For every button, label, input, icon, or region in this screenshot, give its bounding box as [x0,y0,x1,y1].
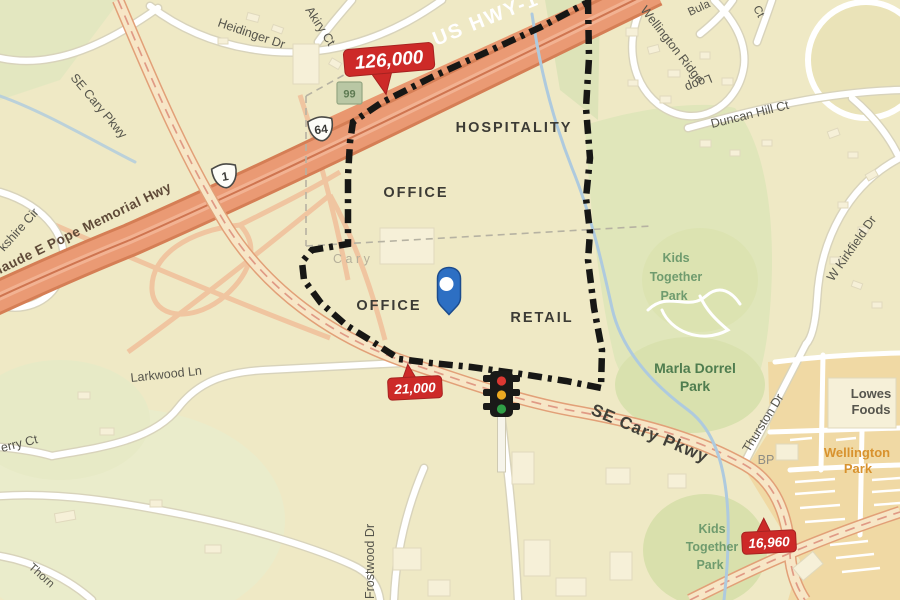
svg-text:64: 64 [313,122,328,138]
park-label-marla-dorrel-2: Park [680,378,711,394]
park-label-kids-together-north-2: Together [650,270,703,284]
poi-label-lowes-1: Lowes [851,386,891,401]
park-label-kids-together-south-1: Kids [698,522,725,536]
site-map[interactable]: US HWY-1 laude E Pope Memorial Hwy SE Ca… [0,0,900,600]
poi-label-lowes-2: Foods [852,402,891,417]
svg-text:16,960: 16,960 [748,534,791,551]
zone-label-hospitality: HOSPITALITY [456,120,573,136]
park-label-kids-together-north-3: Park [660,289,687,303]
map-canvas[interactable]: US HWY-1 laude E Pope Memorial Hwy SE Ca… [0,0,900,600]
zone-label-office-south: OFFICE [356,298,421,314]
park-label-kids-together-south-2: Together [686,540,739,554]
svg-text:99: 99 [343,89,355,101]
park-label-kids-together-south-3: Park [696,558,723,572]
zone-label-retail: RETAIL [510,310,573,326]
park-label-kids-together-north-1: Kids [662,251,689,265]
poi-label-bp: BP [758,453,775,467]
svg-text:21,000: 21,000 [393,380,437,397]
street-label-frostwood-dr: Frostwood Dr [363,524,377,599]
city-label-cary: Cary [333,252,373,266]
park-label-marla-dorrel-1: Marla Dorrel [654,360,736,376]
zone-label-office-north: OFFICE [383,185,448,201]
route-99-shield: 99 [337,82,362,104]
park-label-wellington-2: Park [844,461,873,476]
park-label-wellington-1: Wellington [824,445,890,460]
